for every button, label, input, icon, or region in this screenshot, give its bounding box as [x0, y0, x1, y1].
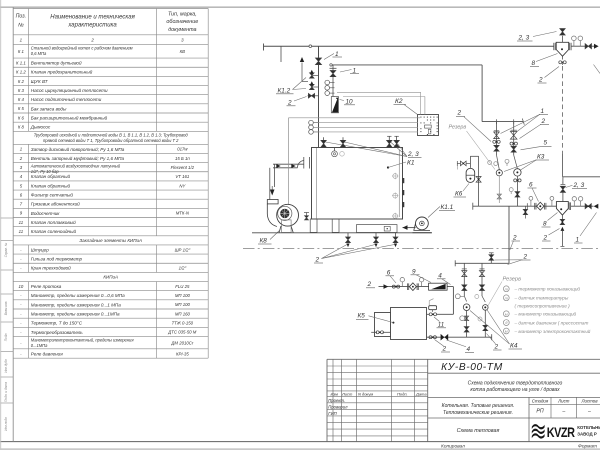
svg-text:Манометр, пределы измерения: Манометр, пределы измерения 0...0,6 МПа [31, 293, 125, 298]
svg-text:К 1.1: К 1.1 [16, 60, 26, 65]
svg-text:10: 10 [346, 99, 354, 106]
svg-text:Взам.инв.: Взам.инв. [4, 301, 8, 316]
svg-text:1: 1 [576, 237, 580, 244]
svg-text:характеристика: характеристика [67, 23, 117, 29]
svg-text:Насос циркуляционный теплосети: Насос циркуляционный теплосети [31, 87, 108, 93]
svg-text:ТТЖ 0-150: ТТЖ 0-150 [172, 321, 194, 326]
svg-text:4: 4 [467, 346, 471, 353]
svg-text:2: 2 [19, 156, 23, 161]
svg-text:KVZR: KVZR [547, 425, 575, 440]
svg-text:ГИП: ГИП [328, 411, 337, 416]
svg-text:РП: РП [536, 409, 543, 415]
svg-text:К 6: К 6 [18, 115, 25, 120]
svg-text:Автоматический воздухоотвод: Автоматический воздухоотводчик латунный [30, 164, 121, 169]
svg-text:6: 6 [529, 182, 533, 189]
svg-text:ДТС 035-50 М: ДТС 035-50 М [167, 330, 197, 335]
svg-text:10: 10 [19, 284, 24, 289]
svg-text:Копировал: Копировал [441, 443, 465, 449]
svg-text:– манометр показывающий: – манометр показывающий [514, 311, 577, 317]
svg-text:документа: документа [168, 27, 196, 33]
svg-text:м: м [505, 329, 508, 334]
svg-text:Инв.дубл: Инв.дубл [4, 359, 8, 373]
svg-text:2: 2 [442, 346, 447, 353]
svg-text:Клапан соленоидный: Клапан соленоидный [31, 228, 77, 234]
svg-text:017w: 017w [177, 147, 188, 152]
svg-text:4: 4 [438, 272, 442, 279]
svg-text:К2: К2 [395, 98, 403, 105]
svg-text:К 8: К 8 [18, 125, 25, 130]
svg-text:Схема подключения твердотоплив: Схема подключения твердотопливного [468, 380, 563, 386]
svg-text:К 2: К 2 [18, 79, 25, 84]
svg-text:Насос подпиточный теплосети: Насос подпиточный теплосети [31, 96, 102, 102]
svg-text:Бак запаса воды: Бак запаса воды [31, 106, 67, 111]
svg-text:Термопреобразователь: Термопреобразователь [31, 330, 84, 335]
svg-text:FLU 25: FLU 25 [175, 284, 190, 289]
svg-text:11: 11 [19, 220, 24, 225]
svg-text:Реле давления: Реле давления [31, 351, 63, 356]
svg-text:0...1МПа: 0...1МПа [31, 343, 48, 348]
svg-text:Инв.подл: Инв.подл [4, 417, 8, 431]
svg-text:Фильтр сетчатый: Фильтр сетчатый [31, 192, 74, 198]
svg-text:2: 2 [367, 281, 372, 288]
svg-text:Подп. и дата: Подп. и дата [4, 382, 8, 402]
svg-text:Вентилятор дутьевой: Вентилятор дутьевой [31, 60, 82, 66]
svg-text:К 4: К 4 [18, 97, 25, 102]
svg-text:1/2": 1/2" [179, 266, 187, 271]
svg-text:Клапан обратный: Клапан обратный [31, 173, 71, 179]
svg-text:– манометр электроконтактный: – манометр электроконтактный [514, 328, 591, 334]
svg-text:прямой сетевой воды Т 1, Труб: прямой сетевой воды Т 1, Трубопроводы об… [43, 138, 179, 143]
svg-text:Закладные элементы КИПиА: Закладные элементы КИПиА [79, 238, 142, 243]
svg-text:8: 8 [543, 221, 547, 228]
svg-text:Подп.: Подп. [397, 391, 408, 396]
svg-text:Грязевик абонентский: Грязевик абонентский [31, 201, 80, 207]
svg-text:К6: К6 [455, 191, 463, 198]
svg-text:К3: К3 [537, 153, 545, 160]
svg-text:котла работающего на угле / др: котла работающего на угле / дровах [470, 387, 560, 393]
svg-text:Формат: Формат [578, 443, 597, 449]
svg-text:2: 2 [523, 254, 528, 261]
svg-text:Клапан поплавковый: Клапан поплавковый [31, 219, 76, 225]
svg-text:2, 3: 2, 3 [573, 182, 585, 189]
svg-text:Дата: Дата [415, 391, 427, 396]
svg-text:5: 5 [544, 139, 548, 146]
svg-text:Манометр, пределы измерения: Манометр, пределы измерения 0...1 МПа [31, 302, 121, 307]
svg-text:9: 9 [412, 268, 416, 275]
svg-text:Кран трехходовой: Кран трехходовой [31, 265, 71, 271]
svg-text:Стадия: Стадия [532, 399, 549, 404]
svg-text:– датчик температуры: – датчик температуры [514, 296, 569, 301]
svg-text:1: 1 [541, 108, 545, 115]
svg-text:2: 2 [494, 344, 499, 351]
svg-text:ДМ 2010Сr: ДМ 2010Сr [170, 340, 193, 345]
svg-text:К1.2: К1.2 [278, 88, 291, 95]
svg-text:( термосопротивление ): ( термосопротивление ) [515, 303, 571, 308]
svg-text:Штуцер: Штуцер [31, 247, 49, 252]
svg-text:Тип, марка,: Тип, марка, [168, 12, 197, 18]
svg-text:Наименование и техническая: Наименование и техническая [50, 15, 135, 21]
svg-text:К 1.2: К 1.2 [16, 70, 26, 75]
svg-text:Листов: Листов [581, 399, 599, 404]
svg-text:КВ: КВ [180, 49, 186, 54]
svg-text:К5: К5 [358, 312, 366, 319]
svg-text:К4: К4 [510, 343, 518, 350]
svg-text:11: 11 [19, 229, 24, 234]
svg-text:2: 2 [541, 118, 546, 125]
svg-text:2: 2 [315, 257, 320, 264]
svg-text:Стальной водогрейный котел с р: Стальной водогрейный котел с рабочим дав… [31, 46, 133, 51]
svg-text:2: 2 [90, 38, 94, 43]
svg-text:Котельная. Типовые решения.: Котельная. Типовые решения. [442, 403, 515, 409]
svg-text:2: 2 [543, 235, 548, 242]
svg-text:Термометр, Т до 150°С: Термометр, Т до 150°С [31, 321, 83, 326]
svg-text:Схема тепловая: Схема тепловая [457, 428, 500, 434]
svg-text:ШР 1/2": ШР 1/2" [175, 247, 191, 252]
svg-text:МП 160: МП 160 [175, 311, 191, 316]
svg-text:Изм: Изм [331, 391, 339, 396]
svg-text:2: 2 [538, 77, 543, 84]
svg-text:6: 6 [387, 269, 391, 276]
svg-text:– термометр показывающий: – термометр показывающий [514, 286, 581, 292]
svg-text:№: № [18, 23, 24, 29]
svg-text:К 3: К 3 [18, 88, 25, 93]
svg-text:VT 161: VT 161 [175, 174, 189, 179]
svg-text:м: м [505, 311, 508, 316]
svg-text:Трубопровод исходной и подпито: Трубопровод исходной и подпиточной воды … [34, 133, 189, 138]
svg-text:Манометр, пределы измерения: Манометр, пределы измерения 0...1МПа [31, 311, 120, 316]
svg-text:МП 100: МП 100 [175, 302, 191, 307]
svg-text:К1.1: К1.1 [441, 204, 454, 211]
svg-text:К1: К1 [407, 160, 415, 167]
svg-text:Flexvent 1/2: Flexvent 1/2 [171, 165, 195, 170]
svg-text:0,6 МПа: 0,6 МПа [31, 51, 47, 56]
svg-text:Подп.: Подп. [4, 333, 8, 342]
svg-text:2: 2 [512, 235, 517, 242]
svg-text:8: 8 [532, 60, 536, 67]
svg-text:Проверил: Проверил [328, 404, 348, 409]
svg-text:2: 2 [287, 100, 292, 107]
svg-text:МТК-N: МТК-N [176, 211, 190, 216]
svg-text:Клапан обратный: Клапан обратный [31, 182, 71, 188]
svg-text:Затвор дисковый поворотный; Р: Затвор дисковый поворотный; Ру 1,6 МПа [31, 146, 125, 152]
svg-text:2, 3: 2, 3 [518, 35, 530, 42]
svg-text:2, 3: 2, 3 [407, 151, 419, 158]
svg-text:–: – [587, 409, 591, 415]
svg-text:Проект.: Проект. [328, 398, 345, 403]
svg-text:Лист: Лист [341, 391, 353, 396]
svg-text:К8: К8 [260, 238, 268, 245]
svg-text:11: 11 [438, 321, 444, 328]
svg-text:КРI-35: КРI-35 [176, 351, 189, 356]
svg-text:Поз.: Поз. [16, 14, 26, 20]
svg-text:МП 100: МП 100 [175, 293, 191, 298]
svg-text:2: 2 [457, 110, 462, 117]
svg-text:Гильза под термометр: Гильза под термометр [31, 257, 83, 262]
svg-text:КИПиА: КИПиА [103, 275, 118, 280]
svg-text:ЩУК ВТ: ЩУК ВТ [31, 79, 49, 84]
svg-text:Тепломеханические решения.: Тепломеханические решения. [443, 410, 513, 416]
svg-text:Резерв: Резерв [503, 277, 521, 283]
svg-text:Вентиль запорный муфтовый; Ру: Вентиль запорный муфтовый; Ру 1,6 МПа [31, 155, 125, 161]
svg-text:К 1: К 1 [18, 49, 25, 54]
svg-text:– датчик давления ( прессоста: – датчик давления ( прессостат [514, 320, 589, 325]
svg-text:Бак расширительный мембранный: Бак расширительный мембранный [31, 114, 108, 120]
svg-text:Справ. №: Справ. № [4, 242, 8, 257]
svg-text:Клапан предохранительный: Клапан предохранительный [31, 69, 93, 75]
svg-text:КОТЕЛЬНЫ: КОТЕЛЬНЫ [577, 425, 600, 430]
svg-text:обозначение: обозначение [166, 19, 198, 25]
svg-text:Дымосос: Дымосос [30, 125, 51, 130]
svg-text:КУ-В-00-ТМ: КУ-В-00-ТМ [441, 362, 503, 373]
svg-text:–: – [561, 409, 565, 415]
svg-text:Манометрэлектроконтактный, пр: Манометрэлектроконтактный, пределы измер… [31, 337, 135, 342]
svg-text:К 5: К 5 [18, 106, 25, 111]
svg-text:ЗАВОД Р: ЗАВОД Р [577, 431, 597, 436]
svg-text:Реле протока: Реле протока [31, 284, 62, 289]
svg-text:Лист: Лист [557, 399, 570, 404]
svg-text:15 Б 1п: 15 Б 1п [175, 156, 190, 161]
svg-text:N докум: N докум [358, 391, 373, 396]
svg-text:1/2", Ру 10 бар: 1/2", Ру 10 бар [31, 169, 60, 174]
svg-text:Водосчетчик: Водосчетчик [31, 211, 60, 216]
svg-text:Резерв: Резерв [449, 125, 467, 131]
